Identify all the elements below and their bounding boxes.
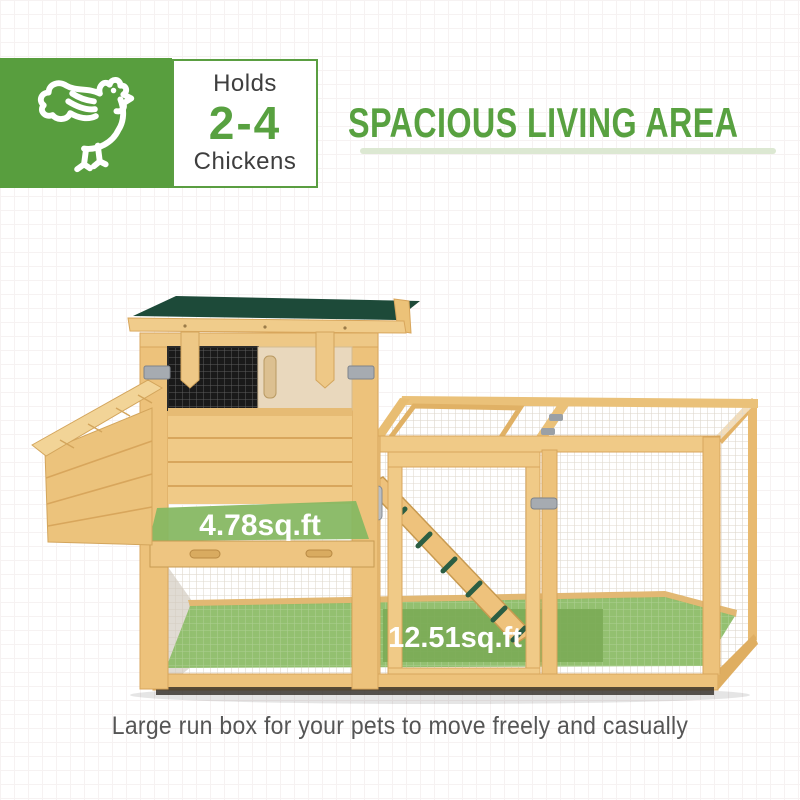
chicken-eye xyxy=(111,88,117,94)
house-slat-wall xyxy=(168,416,352,504)
run-divider-post xyxy=(542,450,557,684)
fascia-screw xyxy=(263,325,266,328)
slat-panel xyxy=(168,416,352,504)
capacity-box: Holds 2-4 Chickens xyxy=(172,59,318,188)
chicken-wing2 xyxy=(72,94,94,102)
roof-bracket xyxy=(316,332,334,388)
section-title: SPACIOUS LIVING AREA xyxy=(348,99,681,147)
chicken-head xyxy=(99,80,131,111)
capacity-badge-tile xyxy=(0,58,172,188)
panel-handle-icon xyxy=(264,356,276,398)
drawer-tray xyxy=(150,541,374,567)
capacity-prefix: Holds xyxy=(213,70,277,98)
chicken-icon xyxy=(27,64,145,182)
coop-illustration-wrap: 4.78sq.ft 12.51sq.ft xyxy=(20,270,800,710)
roof-hinge-icon xyxy=(541,428,555,435)
drawer-slot xyxy=(190,550,220,558)
drawer-board xyxy=(150,541,374,567)
run-corner-post xyxy=(703,437,720,687)
roof-hinge-icon xyxy=(549,414,563,421)
hinge-icon xyxy=(348,366,374,379)
run-floor-label: 12.51sq.ft xyxy=(388,622,522,654)
coop-floor-label: 4.78sq.ft xyxy=(199,509,321,542)
fascia-screw xyxy=(343,326,346,329)
coop-illustration: 4.78sq.ft 12.51sq.ft xyxy=(20,270,800,710)
roof-green-panel xyxy=(133,296,420,320)
roof-bracket xyxy=(181,332,199,388)
hinge-icon xyxy=(144,366,170,379)
title-underline xyxy=(360,148,776,154)
house-top-beam xyxy=(140,333,378,347)
run-door-right-stile xyxy=(526,452,540,683)
drawer-slot xyxy=(306,550,332,557)
run-door-top-rail xyxy=(388,452,540,467)
run-side-back-post xyxy=(748,400,757,640)
fascia-screw xyxy=(183,324,186,327)
door-latch-icon xyxy=(531,498,557,509)
capacity-suffix: Chickens xyxy=(194,148,297,176)
house-mid-rail xyxy=(168,408,352,416)
roof-fascia xyxy=(128,318,406,333)
caption: Large run box for your pets to move free… xyxy=(32,712,768,741)
base-shadow xyxy=(156,687,714,695)
capacity-range: 2-4 xyxy=(209,100,281,146)
